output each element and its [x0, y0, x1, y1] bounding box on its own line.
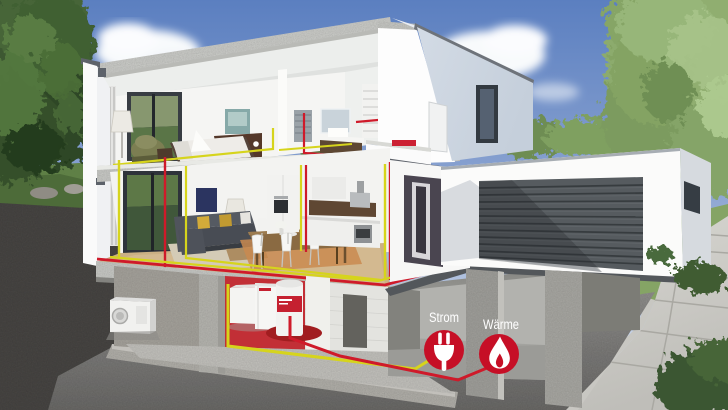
svg-text:Strom: Strom	[429, 310, 459, 325]
svg-text:Wärme: Wärme	[483, 317, 519, 332]
